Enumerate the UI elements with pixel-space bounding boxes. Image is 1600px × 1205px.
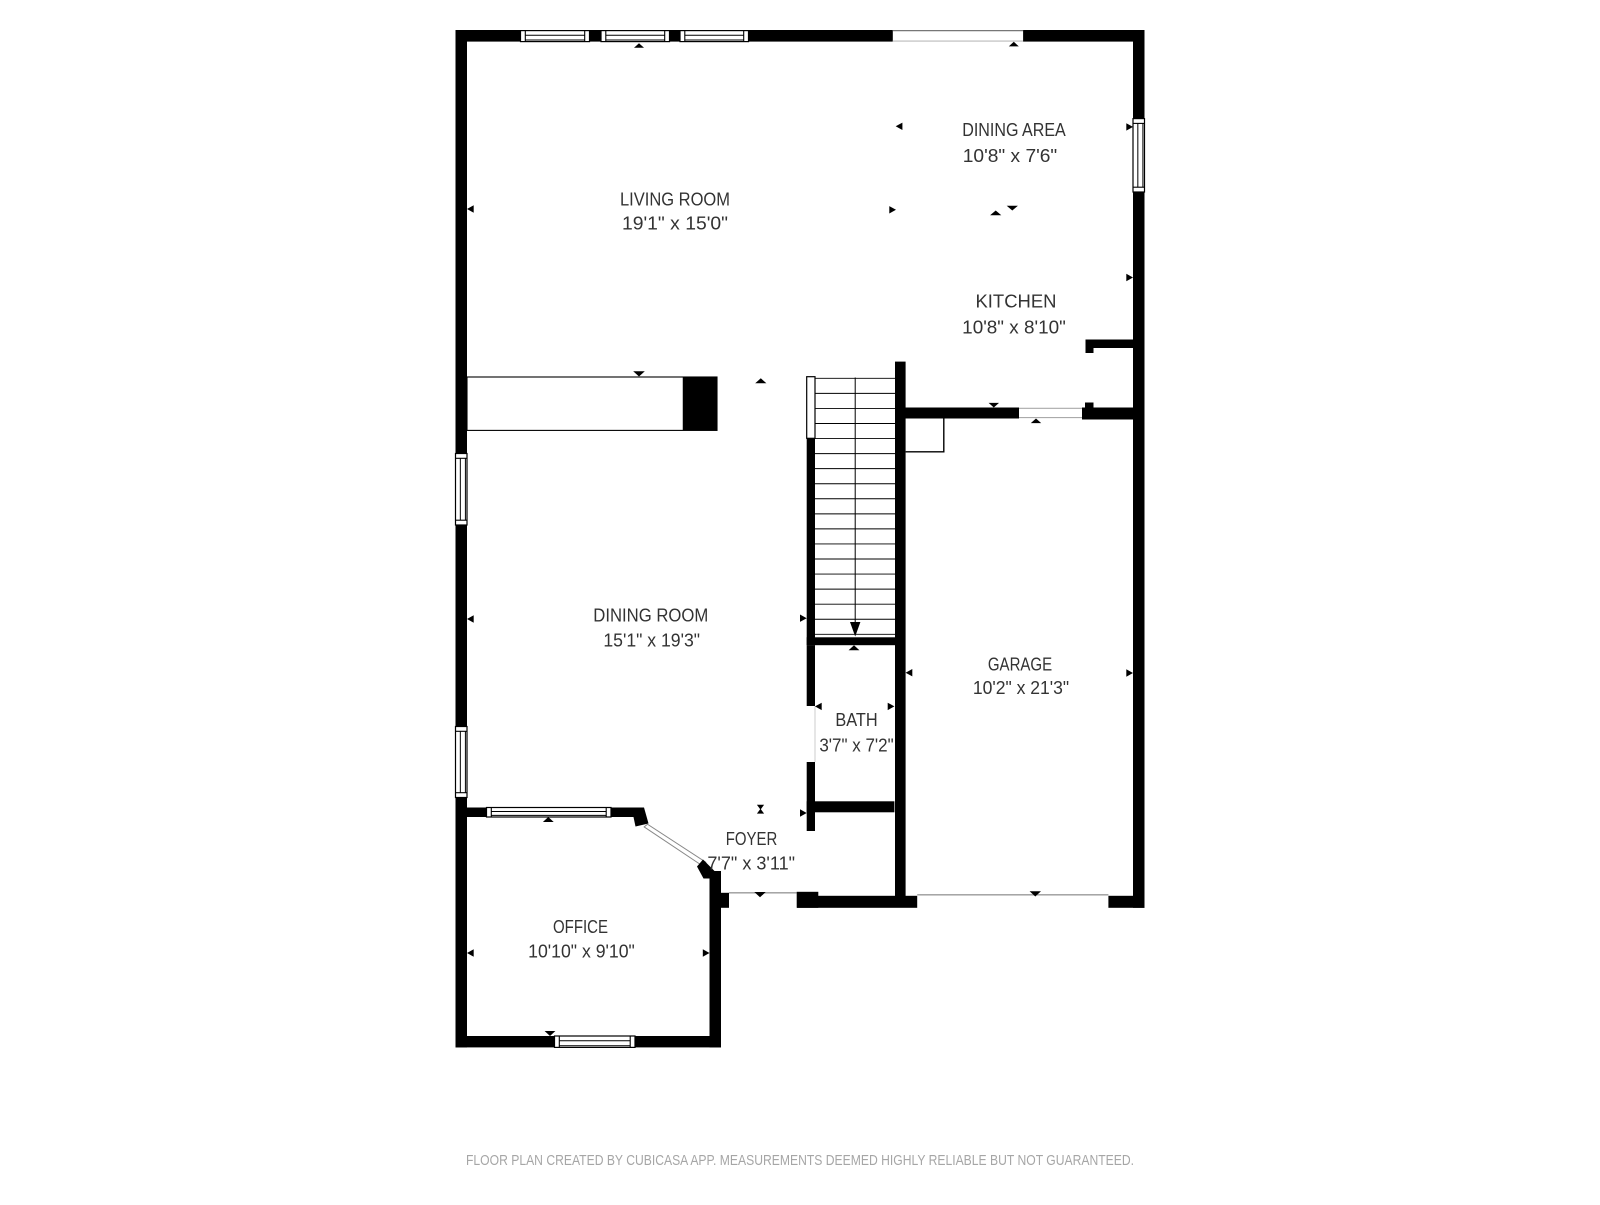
svg-text:DINING AREA: DINING AREA bbox=[962, 119, 1066, 140]
svg-text:OFFICE: OFFICE bbox=[553, 916, 608, 937]
svg-text:10'8" x 7'6": 10'8" x 7'6" bbox=[963, 145, 1058, 166]
svg-text:BATH: BATH bbox=[835, 709, 877, 730]
svg-text:GARAGE: GARAGE bbox=[988, 653, 1052, 674]
svg-text:3'7" x 7'2": 3'7" x 7'2" bbox=[819, 734, 893, 755]
svg-text:10'8" x 8'10": 10'8" x 8'10" bbox=[962, 317, 1066, 338]
svg-text:10'2" x 21'3": 10'2" x 21'3" bbox=[973, 677, 1069, 698]
svg-text:LIVING ROOM: LIVING ROOM bbox=[620, 188, 730, 209]
svg-text:DINING ROOM: DINING ROOM bbox=[593, 605, 708, 626]
svg-text:15'1" x 19'3": 15'1" x 19'3" bbox=[603, 630, 700, 651]
svg-text:7'7" x 3'11": 7'7" x 3'11" bbox=[707, 853, 795, 874]
svg-text:KITCHEN: KITCHEN bbox=[976, 291, 1057, 312]
svg-text:10'10" x 9'10": 10'10" x 9'10" bbox=[528, 941, 635, 962]
svg-text:FLOOR PLAN CREATED BY CUBICASA: FLOOR PLAN CREATED BY CUBICASA APP. MEAS… bbox=[466, 1152, 1134, 1169]
svg-text:FOYER: FOYER bbox=[726, 828, 778, 849]
svg-text:19'1" x 15'0": 19'1" x 15'0" bbox=[622, 213, 728, 234]
